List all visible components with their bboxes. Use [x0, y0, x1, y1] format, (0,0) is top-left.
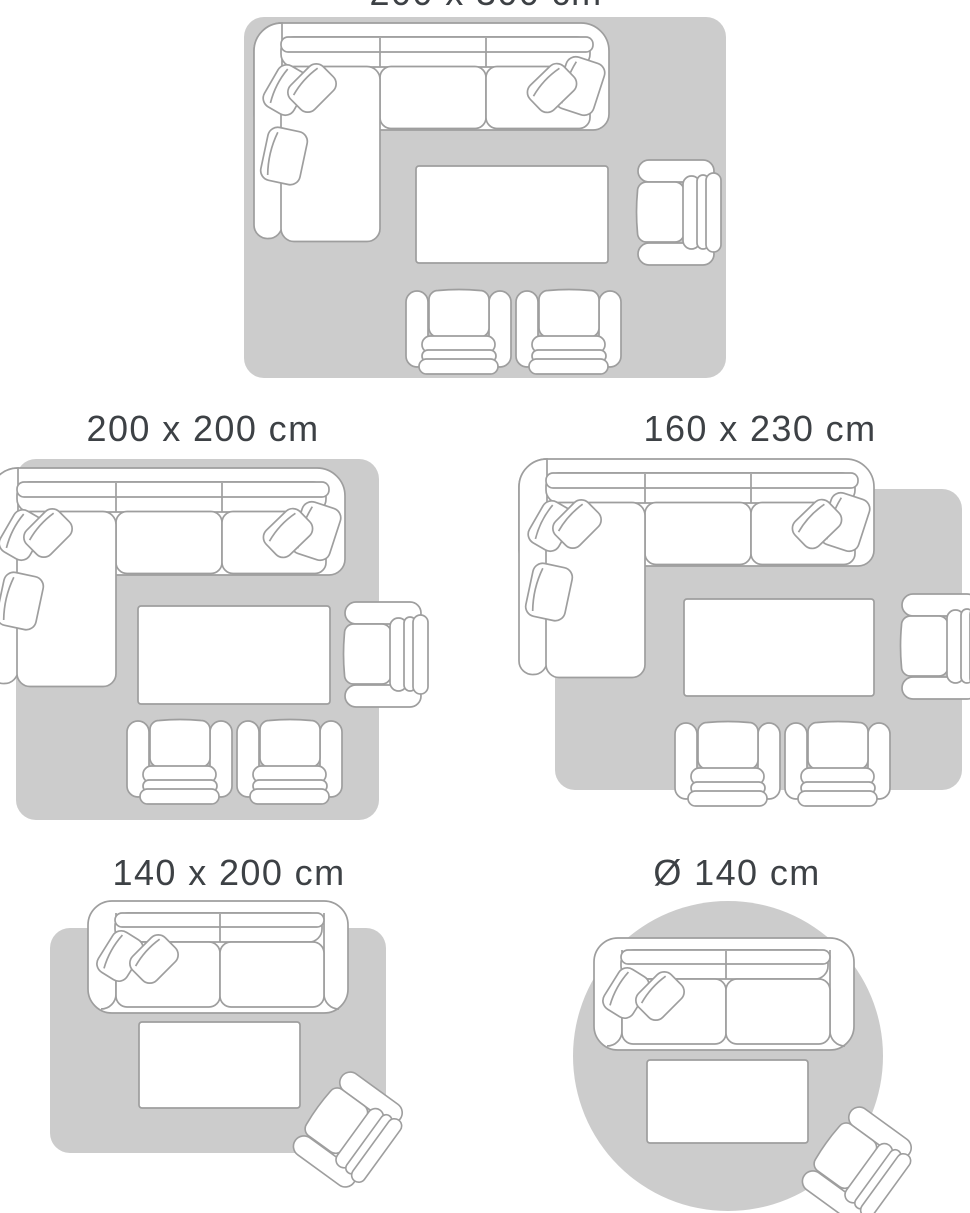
- svg-text:Ø 140 cm: Ø 140 cm: [653, 852, 820, 893]
- svg-text:200 x 200 cm: 200 x 200 cm: [87, 408, 320, 449]
- svg-text:200 x 300 cm: 200 x 300 cm: [370, 0, 603, 13]
- svg-text:140 x 200 cm: 140 x 200 cm: [113, 852, 346, 893]
- svg-text:160 x 230 cm: 160 x 230 cm: [644, 408, 877, 449]
